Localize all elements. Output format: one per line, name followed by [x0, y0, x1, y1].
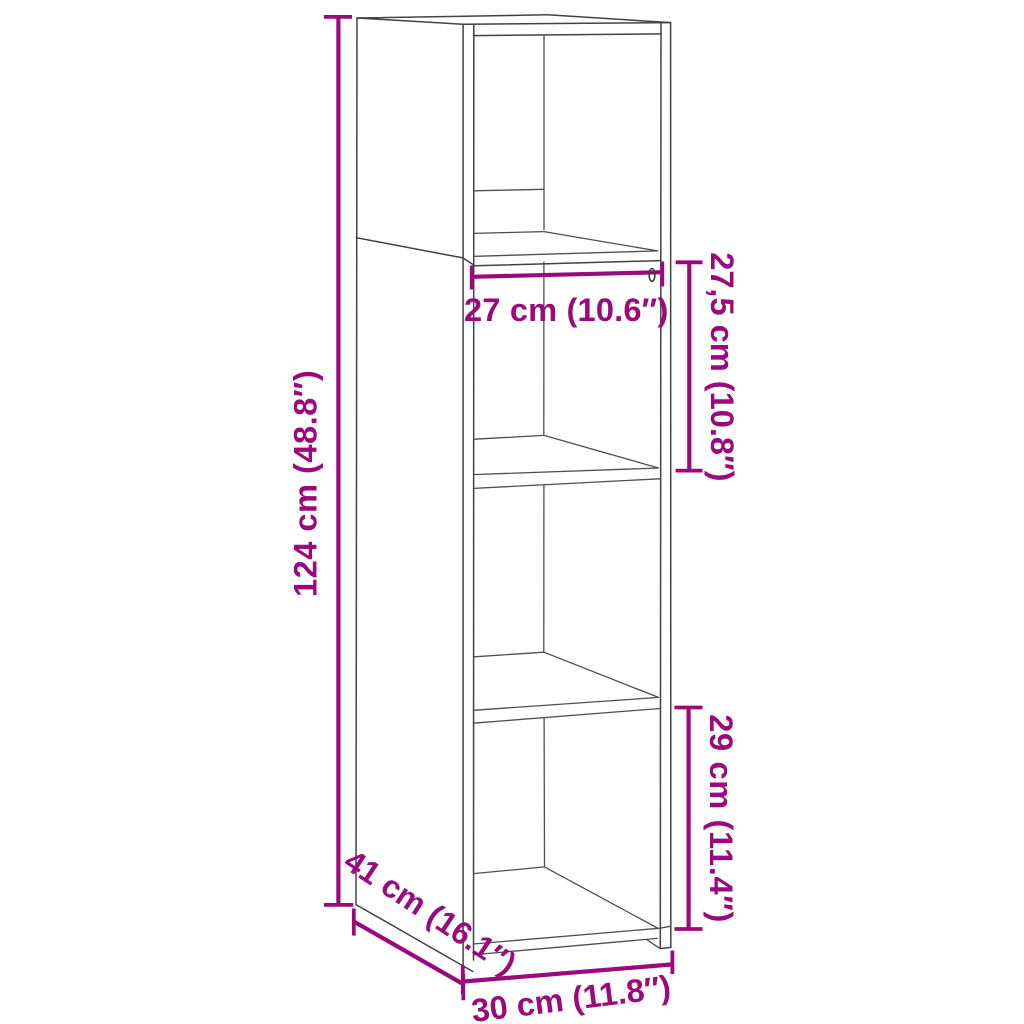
svg-text:29 cm (11.4″): 29 cm (11.4″) — [703, 714, 740, 923]
svg-text:27,5 cm (10.8″): 27,5 cm (10.8″) — [704, 252, 741, 481]
svg-text:124 cm (48.8″): 124 cm (48.8″) — [287, 370, 324, 597]
svg-text:27 cm (10.6″): 27 cm (10.6″) — [464, 291, 668, 328]
